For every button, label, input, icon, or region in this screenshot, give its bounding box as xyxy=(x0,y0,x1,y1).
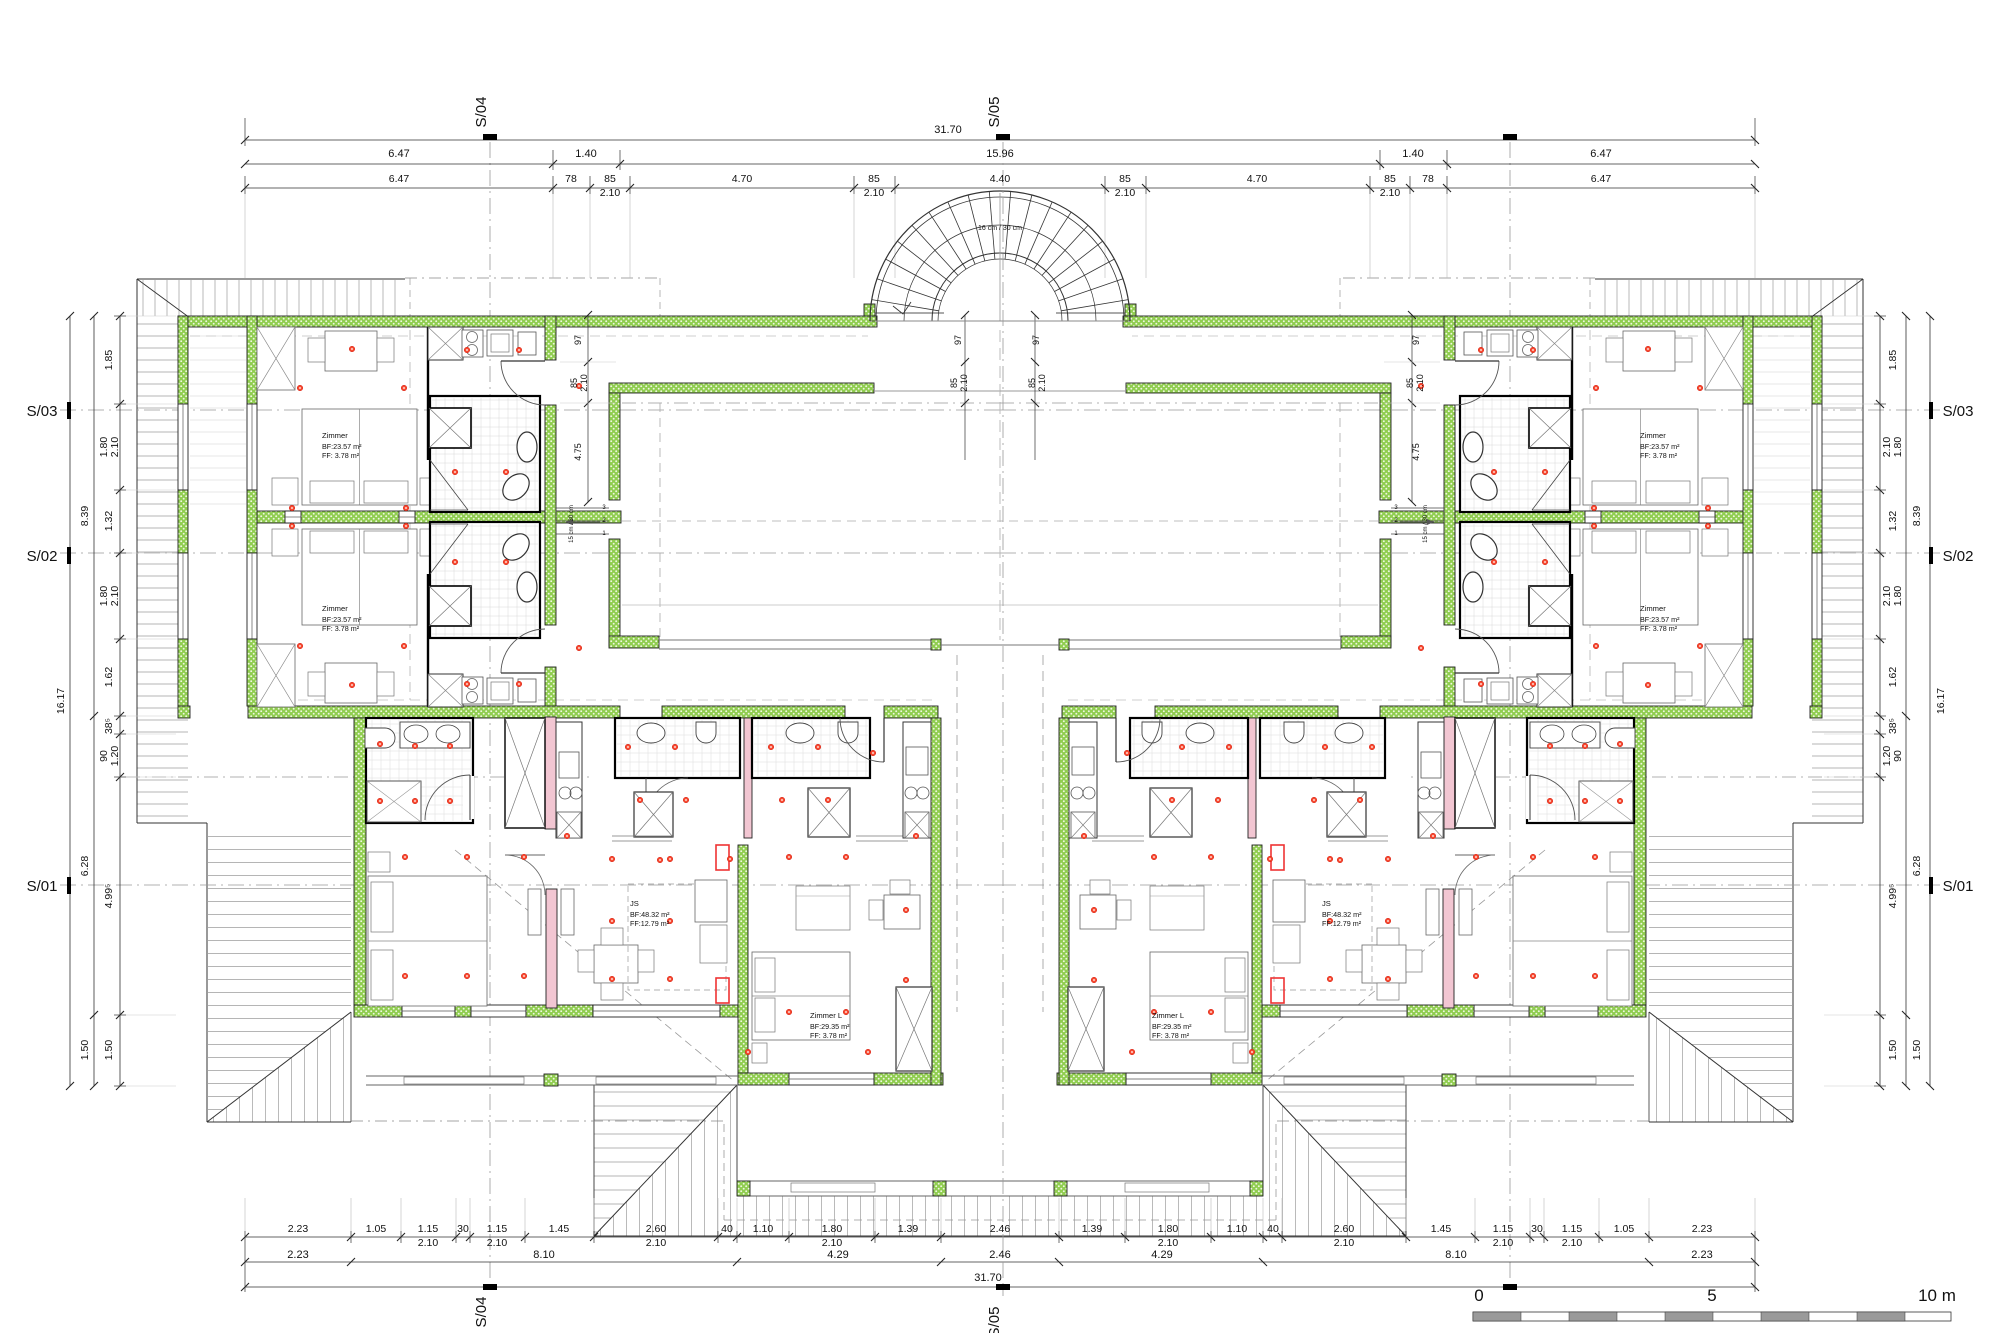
svg-text:4.70: 4.70 xyxy=(1247,173,1268,185)
svg-text:1.50: 1.50 xyxy=(103,1040,115,1061)
svg-text:2.10: 2.10 xyxy=(646,1237,667,1249)
svg-text:2.10: 2.10 xyxy=(418,1237,439,1249)
svg-text:97: 97 xyxy=(1031,335,1041,345)
svg-text:6.47: 6.47 xyxy=(389,173,410,185)
svg-text:8.10: 8.10 xyxy=(1445,1249,1466,1261)
svg-text:4.40: 4.40 xyxy=(990,173,1011,185)
svg-text:2.10: 2.10 xyxy=(959,374,969,392)
svg-text:97: 97 xyxy=(1411,335,1421,345)
svg-text:2.10: 2.10 xyxy=(109,437,121,458)
svg-text:40: 40 xyxy=(1267,1223,1279,1235)
svg-text:S/02: S/02 xyxy=(27,548,58,565)
svg-text:S/04: S/04 xyxy=(473,1297,490,1328)
svg-text:S/01: S/01 xyxy=(27,878,58,895)
svg-text:FF: 3.78 m²: FF: 3.78 m² xyxy=(322,451,360,460)
svg-text:85: 85 xyxy=(1384,173,1396,185)
svg-text:FF: 3.78 m²: FF: 3.78 m² xyxy=(1640,451,1678,460)
svg-text:10 m: 10 m xyxy=(1918,1286,1956,1305)
svg-text:1.50: 1.50 xyxy=(1911,1040,1923,1061)
svg-text:2.23: 2.23 xyxy=(288,1223,309,1235)
svg-text:2.60: 2.60 xyxy=(1334,1223,1355,1235)
svg-text:Zimmer L: Zimmer L xyxy=(1152,1011,1184,1020)
svg-text:15.96: 15.96 xyxy=(986,148,1014,160)
svg-text:BF:48.32 m²: BF:48.32 m² xyxy=(1322,910,1362,919)
svg-text:BF:29.35 m²: BF:29.35 m² xyxy=(1152,1022,1192,1031)
svg-text:4.99⁵: 4.99⁵ xyxy=(103,884,115,909)
svg-text:4.99⁵: 4.99⁵ xyxy=(1887,884,1899,909)
svg-text:1.39: 1.39 xyxy=(1082,1223,1103,1235)
svg-text:1.15: 1.15 xyxy=(487,1223,508,1235)
svg-text:1.40: 1.40 xyxy=(575,148,596,160)
svg-text:2.46: 2.46 xyxy=(990,1223,1011,1235)
svg-text:1.45: 1.45 xyxy=(549,1223,570,1235)
svg-text:1.50: 1.50 xyxy=(79,1040,91,1061)
svg-text:S/01: S/01 xyxy=(1943,878,1974,895)
svg-text:1.10: 1.10 xyxy=(1227,1223,1248,1235)
svg-text:1.80: 1.80 xyxy=(1892,437,1904,458)
svg-text:15 cm / 30 cm: 15 cm / 30 cm xyxy=(1423,505,1429,543)
svg-text:1.85: 1.85 xyxy=(1887,350,1899,371)
svg-text:16 cm / 30 cm: 16 cm / 30 cm xyxy=(978,225,1022,232)
svg-text:4.29: 4.29 xyxy=(1151,1249,1172,1261)
svg-text:78: 78 xyxy=(1422,173,1434,185)
svg-text:1.20: 1.20 xyxy=(109,746,121,767)
svg-text:2.10: 2.10 xyxy=(1881,437,1893,458)
svg-text:38⁵: 38⁵ xyxy=(1887,718,1899,734)
svg-text:2.10: 2.10 xyxy=(1881,586,1893,607)
svg-text:S/04: S/04 xyxy=(473,97,490,128)
svg-text:BF:23.57 m²: BF:23.57 m² xyxy=(1640,442,1680,451)
svg-text:1.80: 1.80 xyxy=(822,1223,843,1235)
svg-text:1.15: 1.15 xyxy=(1493,1223,1514,1235)
svg-text:2.60: 2.60 xyxy=(646,1223,667,1235)
svg-text:6.47: 6.47 xyxy=(1590,148,1611,160)
svg-text:85: 85 xyxy=(1405,378,1415,388)
svg-text:2.10: 2.10 xyxy=(1493,1237,1514,1249)
svg-text:16.17: 16.17 xyxy=(1935,688,1947,714)
svg-text:1.15: 1.15 xyxy=(418,1223,439,1235)
svg-text:S/05: S/05 xyxy=(986,97,1003,128)
svg-text:30: 30 xyxy=(1531,1223,1543,1235)
svg-text:1.32: 1.32 xyxy=(103,511,115,532)
svg-text:40: 40 xyxy=(721,1223,733,1235)
svg-text:4.70: 4.70 xyxy=(732,173,753,185)
svg-text:90: 90 xyxy=(1892,750,1904,762)
svg-text:1.15: 1.15 xyxy=(1562,1223,1583,1235)
svg-text:2.10: 2.10 xyxy=(487,1237,508,1249)
svg-text:FF:12.79 m²: FF:12.79 m² xyxy=(630,919,670,928)
svg-text:15 cm / 30 cm: 15 cm / 30 cm xyxy=(569,505,575,543)
svg-text:5: 5 xyxy=(1707,1286,1716,1305)
svg-text:S/05: S/05 xyxy=(986,1307,1003,1333)
svg-text:S/03: S/03 xyxy=(27,403,58,420)
svg-text:JS: JS xyxy=(630,899,639,908)
svg-text:BF:23.57 m²: BF:23.57 m² xyxy=(322,615,362,624)
svg-text:97: 97 xyxy=(573,335,583,345)
svg-text:2.23: 2.23 xyxy=(1691,1249,1712,1261)
svg-text:Zimmer: Zimmer xyxy=(1640,431,1666,440)
svg-text:78: 78 xyxy=(565,173,577,185)
svg-text:1.40: 1.40 xyxy=(1402,148,1423,160)
svg-text:2.10: 2.10 xyxy=(1115,187,1136,199)
svg-text:BF:23.57 m²: BF:23.57 m² xyxy=(322,442,362,451)
svg-text:2.10: 2.10 xyxy=(1158,1237,1179,1249)
svg-text:Zimmer: Zimmer xyxy=(322,604,348,613)
svg-text:2.10: 2.10 xyxy=(1334,1237,1355,1249)
svg-text:FF:12.79 m²: FF:12.79 m² xyxy=(1322,919,1362,928)
svg-text:FF: 3.78 m²: FF: 3.78 m² xyxy=(1152,1031,1190,1040)
svg-text:2.46: 2.46 xyxy=(989,1249,1010,1261)
svg-text:2.10: 2.10 xyxy=(1380,187,1401,199)
svg-text:2.10: 2.10 xyxy=(1562,1237,1583,1249)
svg-text:2.10: 2.10 xyxy=(864,187,885,199)
svg-text:Zimmer L: Zimmer L xyxy=(810,1011,842,1020)
svg-text:FF: 3.78 m²: FF: 3.78 m² xyxy=(322,624,360,633)
svg-text:1.39: 1.39 xyxy=(898,1223,919,1235)
svg-text:31.70: 31.70 xyxy=(974,1272,1002,1284)
svg-text:JS: JS xyxy=(1322,899,1331,908)
svg-text:2.10: 2.10 xyxy=(109,586,121,607)
svg-text:85: 85 xyxy=(604,173,616,185)
svg-text:1.32: 1.32 xyxy=(1887,511,1899,532)
svg-text:1.85: 1.85 xyxy=(103,350,115,371)
svg-text:31.70: 31.70 xyxy=(934,124,962,136)
svg-text:2.10: 2.10 xyxy=(579,374,589,392)
svg-text:38⁵: 38⁵ xyxy=(103,718,115,734)
svg-text:6.47: 6.47 xyxy=(1591,173,1612,185)
svg-text:85: 85 xyxy=(569,378,579,388)
svg-text:6.47: 6.47 xyxy=(388,148,409,160)
svg-text:2.10: 2.10 xyxy=(1037,374,1047,392)
svg-text:Zimmer: Zimmer xyxy=(1640,604,1666,613)
svg-text:30: 30 xyxy=(457,1223,469,1235)
svg-text:1.80: 1.80 xyxy=(1892,586,1904,607)
svg-text:1.62: 1.62 xyxy=(103,667,115,688)
svg-text:8.10: 8.10 xyxy=(533,1249,554,1261)
svg-text:BF:29.35 m²: BF:29.35 m² xyxy=(810,1022,850,1031)
svg-text:S/03: S/03 xyxy=(1943,403,1974,420)
svg-text:4.75: 4.75 xyxy=(1411,443,1421,461)
svg-text:FF: 3.78 m²: FF: 3.78 m² xyxy=(810,1031,848,1040)
svg-text:85: 85 xyxy=(1119,173,1131,185)
svg-text:4.29: 4.29 xyxy=(827,1249,848,1261)
svg-text:16.17: 16.17 xyxy=(55,688,67,714)
svg-text:97: 97 xyxy=(953,335,963,345)
svg-text:S/02: S/02 xyxy=(1943,548,1974,565)
svg-text:8.39: 8.39 xyxy=(79,506,91,527)
svg-text:1.50: 1.50 xyxy=(1887,1040,1899,1061)
svg-text:1.45: 1.45 xyxy=(1431,1223,1452,1235)
svg-text:2.23: 2.23 xyxy=(287,1249,308,1261)
svg-text:6.28: 6.28 xyxy=(1911,856,1923,877)
svg-text:BF:23.57 m²: BF:23.57 m² xyxy=(1640,615,1680,624)
svg-text:1.62: 1.62 xyxy=(1887,667,1899,688)
svg-text:0: 0 xyxy=(1474,1286,1483,1305)
svg-text:2.10: 2.10 xyxy=(600,187,621,199)
svg-text:1.05: 1.05 xyxy=(366,1223,387,1235)
svg-text:85: 85 xyxy=(949,378,959,388)
svg-text:FF: 3.78 m²: FF: 3.78 m² xyxy=(1640,624,1678,633)
svg-text:85: 85 xyxy=(868,173,880,185)
svg-text:4.75: 4.75 xyxy=(573,443,583,461)
svg-text:2.10: 2.10 xyxy=(822,1237,843,1249)
svg-text:1.05: 1.05 xyxy=(1614,1223,1635,1235)
svg-text:6.28: 6.28 xyxy=(79,856,91,877)
svg-text:1.80: 1.80 xyxy=(1158,1223,1179,1235)
svg-text:85: 85 xyxy=(1027,378,1037,388)
svg-text:Zimmer: Zimmer xyxy=(322,431,348,440)
svg-text:1.10: 1.10 xyxy=(753,1223,774,1235)
svg-text:2.10: 2.10 xyxy=(1415,374,1425,392)
svg-text:8.39: 8.39 xyxy=(1911,506,1923,527)
svg-text:BF:48.32 m²: BF:48.32 m² xyxy=(630,910,670,919)
svg-text:2.23: 2.23 xyxy=(1692,1223,1713,1235)
svg-text:1.20: 1.20 xyxy=(1881,746,1893,767)
